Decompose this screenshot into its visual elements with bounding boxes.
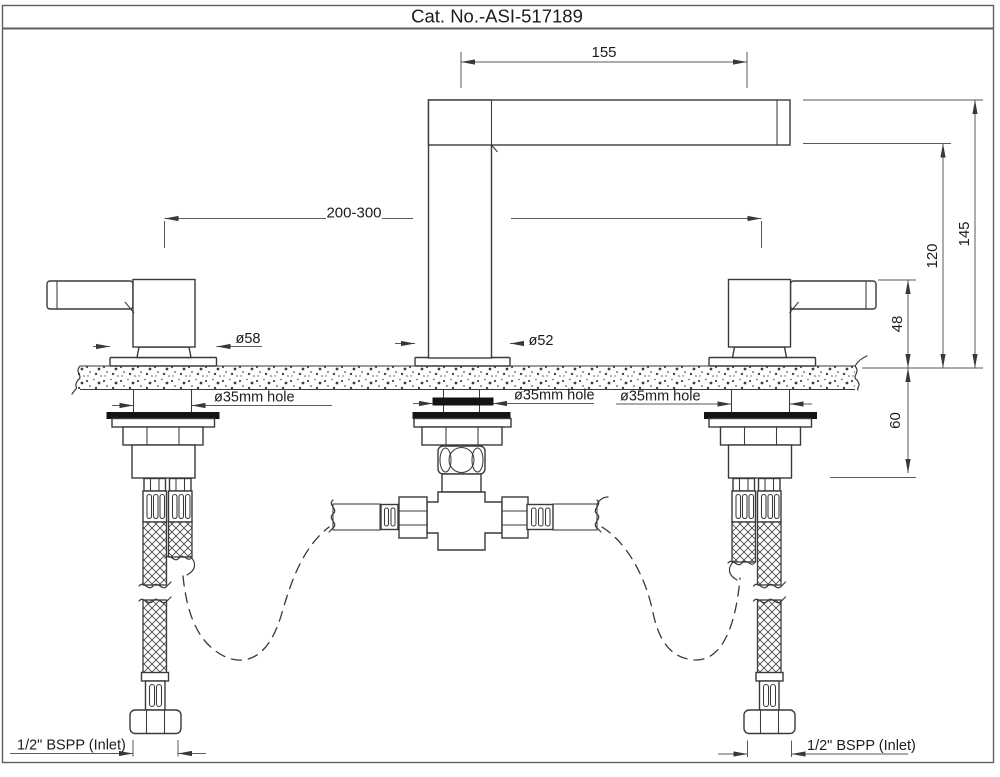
arrowhead [940, 144, 945, 158]
hose-end-crimp [146, 681, 166, 710]
center-tee-assembly [329, 390, 608, 551]
label-inlet-left: 1/2" BSPP (Inlet) [17, 738, 126, 754]
metal-flange-washer [414, 419, 511, 428]
hose-end-crimp [760, 681, 780, 710]
arrowhead [401, 341, 415, 346]
tee-braided-hose-right [553, 504, 597, 530]
label-inlet-right: 1/2" BSPP (Inlet) [807, 738, 916, 754]
arrowhead [790, 401, 804, 406]
dim-deck-thickness: 60 [887, 412, 904, 429]
deck-break-right [855, 366, 859, 390]
arrowhead [748, 216, 762, 221]
arrowhead [733, 59, 747, 64]
metal-flange-washer [709, 419, 812, 428]
handle-body [729, 280, 791, 348]
dim-inlet-centers: 200-300 [326, 205, 381, 222]
handle-base-flange [110, 358, 217, 367]
installation-drawing: Cat. No.-ASI-517189 [0, 0, 1000, 777]
arrowhead [905, 459, 910, 473]
arrowhead [940, 354, 945, 368]
arrowhead [165, 216, 179, 221]
hose-end-collar [142, 673, 169, 682]
handle-lever [47, 281, 133, 309]
handle-neck [137, 347, 191, 358]
label-hole-center: ø35mm hole [514, 388, 595, 404]
dim-spout-underside-height: 120 [924, 243, 941, 268]
routing-curve-right [602, 527, 740, 660]
rubber-washer [107, 413, 219, 419]
tee-neck [442, 474, 481, 492]
arrowhead [217, 344, 231, 349]
arrowhead [792, 751, 806, 756]
arrowhead [419, 401, 433, 406]
valve-outlet-hose [169, 522, 193, 557]
handle-body [133, 280, 195, 348]
deck-speckle-texture [78, 367, 855, 390]
rubber-washer-top [433, 398, 493, 405]
inlet-nut [744, 710, 795, 734]
arrowhead [510, 341, 524, 346]
arrowhead [192, 403, 206, 408]
left-handle [47, 280, 217, 367]
right-valve-underdeck [705, 390, 817, 734]
dim-spout-reach: 155 [591, 44, 616, 61]
tee-body [427, 492, 502, 550]
valve-body [132, 445, 195, 478]
arrowhead [905, 280, 910, 294]
valve-body [729, 445, 792, 478]
swivel-connector [438, 446, 485, 474]
tee-nut-right [502, 497, 528, 538]
handle-base-flange [709, 358, 816, 367]
handle-lever [791, 281, 877, 309]
arrowhead [461, 59, 475, 64]
hose-end-collar [756, 673, 783, 682]
arrowhead [178, 751, 192, 756]
label-hole-right: ø35mm hole [620, 389, 701, 405]
supply-hose-outer-lower [143, 600, 167, 673]
spout-arm [429, 100, 791, 145]
deck-break-left [72, 366, 80, 394]
hose-break-curl [165, 556, 195, 575]
supply-hose-outer [143, 522, 167, 585]
arrowhead [972, 100, 977, 114]
spout-base-flange [415, 358, 510, 367]
label-hole-left: ø35mm hole [214, 390, 295, 406]
hose-break-curl [728, 561, 755, 580]
arrowhead [718, 401, 732, 406]
mounting-nut [721, 427, 801, 445]
dimension-arrowheads [96, 59, 978, 756]
hose-break-tee-left [329, 500, 335, 532]
tee-braided-hose-left [333, 504, 380, 530]
arrowhead [905, 354, 910, 368]
arrowhead [734, 751, 748, 756]
label-handle-base-dia: ø58 [236, 331, 261, 347]
valve-outlet-hose [732, 522, 756, 562]
rubber-washer-wide [413, 413, 510, 419]
rubber-washer [705, 413, 817, 419]
supply-hose-outer [758, 522, 782, 585]
arrowhead [493, 401, 507, 406]
mounting-nut [123, 427, 203, 445]
right-handle [709, 280, 876, 367]
handle-neck [733, 347, 787, 358]
arrowhead [905, 368, 910, 382]
arrowhead [972, 354, 977, 368]
dim-total-height: 145 [956, 221, 973, 246]
left-valve-underdeck [107, 390, 219, 734]
arrowhead [120, 403, 134, 408]
tee-nut-left [399, 497, 427, 538]
arrowhead [96, 344, 110, 349]
mounting-nut [422, 427, 502, 445]
label-spout-base-dia: ø52 [529, 333, 554, 349]
inlet-nut [130, 710, 181, 734]
metal-flange-washer [112, 419, 215, 428]
routing-curve-left [183, 527, 329, 660]
supply-hose-outer-lower [758, 600, 782, 673]
dim-handle-height: 48 [889, 316, 906, 333]
catalog-number-title: Cat. No.-ASI-517189 [411, 6, 583, 27]
